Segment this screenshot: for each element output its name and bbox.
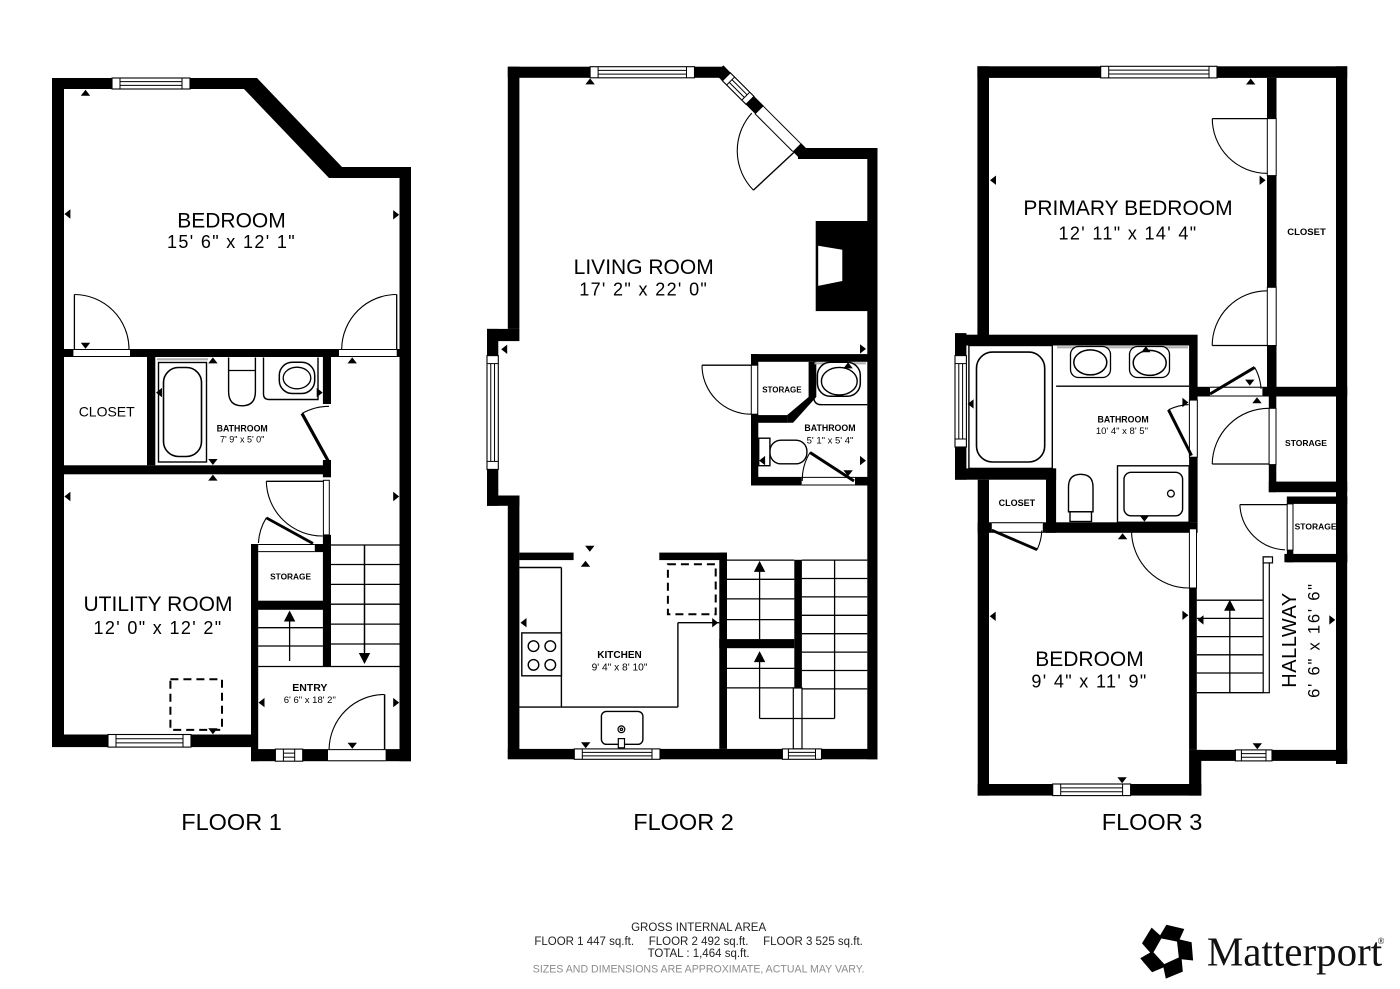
svg-text:CLOSET: CLOSET	[1287, 227, 1326, 238]
svg-text:CLOSET: CLOSET	[999, 498, 1036, 508]
svg-text:BATHROOM: BATHROOM	[804, 423, 855, 433]
svg-text:FLOOR 3: FLOOR 3	[1102, 809, 1203, 835]
svg-text:GROSS INTERNAL AREA: GROSS INTERNAL AREA	[631, 922, 766, 934]
svg-text:6' 6" x 16' 6": 6' 6" x 16' 6"	[1305, 582, 1323, 698]
svg-text:UTILITY ROOM: UTILITY ROOM	[84, 593, 233, 616]
svg-text:PRIMARY BEDROOM: PRIMARY BEDROOM	[1023, 197, 1232, 220]
svg-text:15' 6" x 12' 1": 15' 6" x 12' 1"	[167, 232, 296, 252]
svg-text:9' 4" x 8' 10": 9' 4" x 8' 10"	[592, 663, 648, 674]
svg-text:17' 2" x 22' 0": 17' 2" x 22' 0"	[579, 280, 708, 300]
svg-text:TOTAL : 1,464 sq.ft.: TOTAL : 1,464 sq.ft.	[648, 948, 750, 960]
svg-text:9' 4" x 11' 9": 9' 4" x 11' 9"	[1031, 671, 1147, 691]
svg-text:12' 0" x 12' 2": 12' 0" x 12' 2"	[94, 618, 223, 638]
svg-text:HALLWAY: HALLWAY	[1279, 592, 1301, 687]
svg-text:ENTRY: ENTRY	[292, 682, 327, 694]
svg-text:STORAGE: STORAGE	[762, 385, 802, 394]
svg-text:Matterport: Matterport	[1207, 929, 1383, 975]
svg-text:STORAGE: STORAGE	[270, 572, 311, 582]
svg-text:SIZES AND DIMENSIONS ARE APPRO: SIZES AND DIMENSIONS ARE APPROXIMATE, AC…	[533, 964, 865, 976]
svg-text:CLOSET: CLOSET	[79, 404, 135, 420]
svg-text:BEDROOM: BEDROOM	[177, 210, 286, 233]
svg-text:12' 11" x 14' 4": 12' 11" x 14' 4"	[1059, 224, 1198, 244]
svg-text:FLOOR 2: FLOOR 2	[633, 809, 734, 835]
svg-text:FLOOR 1 447 sq.ft. FLOOR 2 49: FLOOR 1 447 sq.ft. FLOOR 2 492 sq.ft. FL…	[534, 936, 863, 948]
svg-text:BEDROOM: BEDROOM	[1035, 648, 1144, 671]
svg-text:BATHROOM: BATHROOM	[1098, 415, 1149, 425]
svg-text:BATHROOM: BATHROOM	[217, 424, 268, 434]
svg-text:5' 1" x 5' 4": 5' 1" x 5' 4"	[807, 436, 854, 447]
svg-text:KITCHEN: KITCHEN	[597, 650, 641, 661]
svg-text:7' 9" x 5' 0": 7' 9" x 5' 0"	[220, 435, 264, 445]
svg-text:®: ®	[1378, 936, 1385, 946]
svg-text:STORAGE: STORAGE	[1285, 438, 1327, 448]
svg-text:10' 4" x 8' 5": 10' 4" x 8' 5"	[1096, 426, 1148, 437]
svg-text:6' 6" x 18' 2": 6' 6" x 18' 2"	[284, 695, 336, 706]
svg-text:STORAGE: STORAGE	[1295, 522, 1337, 532]
svg-text:LIVING ROOM: LIVING ROOM	[574, 256, 714, 279]
svg-text:FLOOR 1: FLOOR 1	[181, 809, 282, 835]
